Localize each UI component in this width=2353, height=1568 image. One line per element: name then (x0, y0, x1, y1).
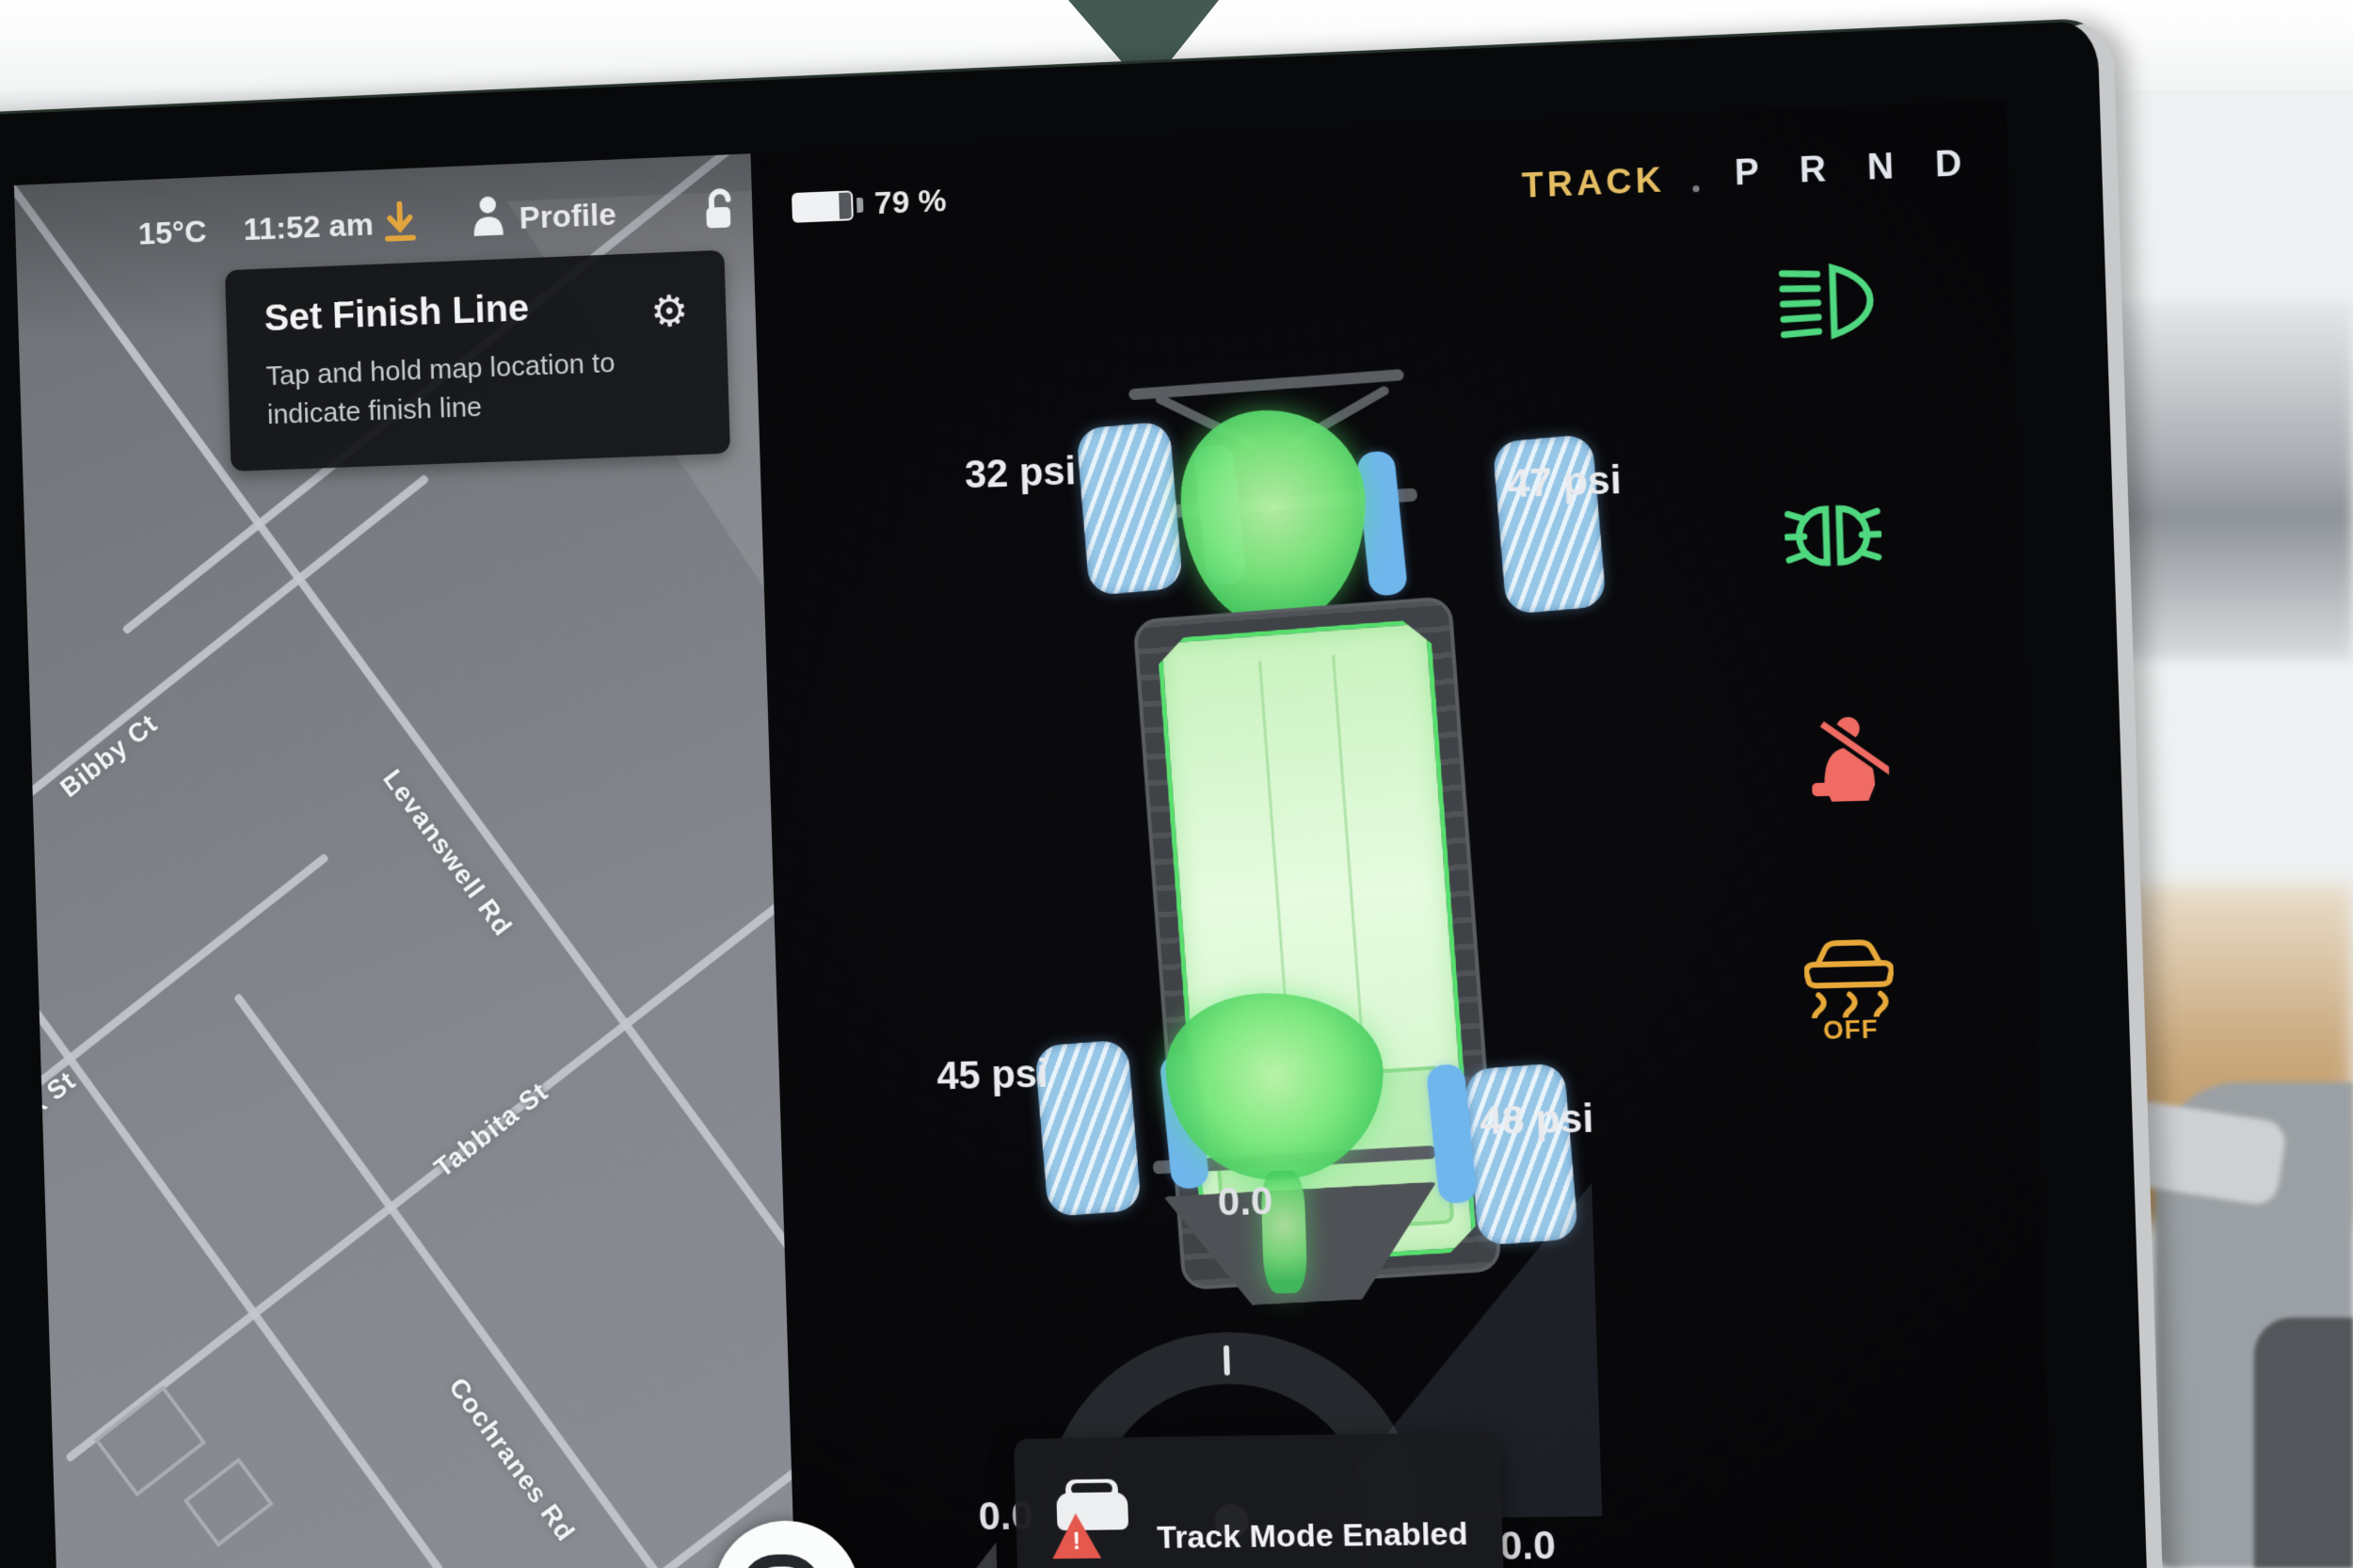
g-meter-tick (1224, 1345, 1230, 1375)
interior-object (2254, 1318, 2353, 1568)
warning-exclamation: ! (1051, 1527, 1101, 1557)
street-label-tabbita: Tabbita St (429, 1077, 554, 1184)
street-label-k-st: k St (24, 1066, 82, 1122)
road (14, 474, 430, 888)
finish-card-body: Tap and hold map location to indicate fi… (265, 344, 632, 435)
round-button-glyph (739, 1554, 824, 1568)
car-warning-icon: ! (1050, 1471, 1140, 1562)
outside-temperature[interactable]: 15°C (137, 214, 207, 252)
traction-off-label: OFF (1804, 1015, 1898, 1047)
clock: 11:52 am (243, 207, 374, 248)
building-outline (94, 1385, 207, 1497)
track-mode-panel: 79 % TRACK P R N D OFF (750, 100, 2058, 1568)
front-strut-bar (1128, 369, 1404, 400)
gear-settings-icon[interactable]: ⚙ (649, 289, 689, 333)
photo-of-tesla-screen: Bibby Ct Levanswell Rd k St Tabbita St C… (0, 0, 2353, 1568)
battery-icon-nub (856, 198, 863, 213)
battery-percent: 79 % (873, 183, 947, 222)
set-finish-line-card[interactable]: Set Finish Line Tap and hold map locatio… (225, 250, 730, 472)
download-update-icon[interactable] (380, 200, 420, 250)
rear-right-tire (1465, 1063, 1579, 1246)
battery-icon[interactable] (792, 190, 854, 222)
rear-left-tire (1034, 1039, 1142, 1217)
front-right-pressure: 47 psi (1507, 457, 1622, 507)
toast-message: Track Mode Enabled (1157, 1516, 1468, 1557)
front-left-pressure: 32 psi (964, 448, 1077, 497)
rear-right-pressure: 48 psi (1479, 1096, 1593, 1144)
g-meter-right-value: 0.0 (1499, 1523, 1557, 1568)
gear-indicator[interactable]: P R N D (1734, 143, 1977, 194)
profile-person-icon[interactable] (471, 194, 504, 243)
parking-lights-icon (1784, 496, 1882, 576)
seatbelt-warning-icon (1808, 714, 1890, 808)
front-left-tire (1076, 421, 1183, 596)
traction-control-off-icon: OFF (1803, 934, 1895, 1018)
finish-card-title: Set Finish Line (264, 286, 530, 340)
g-meter-top-value: 0.0 (1193, 1177, 1298, 1224)
high-beam-icon (1776, 259, 1876, 344)
drive-mode-label[interactable]: TRACK (1521, 160, 1665, 206)
road (14, 853, 329, 1222)
map-panel[interactable]: Bibby Ct Levanswell Rd k St Tabbita St C… (14, 153, 801, 1568)
unlock-icon[interactable] (700, 186, 739, 237)
building-outline (184, 1458, 274, 1547)
rear-left-pressure: 45 psi (936, 1051, 1048, 1098)
tesla-touchscreen: Bibby Ct Levanswell Rd k St Tabbita St C… (0, 17, 2169, 1568)
front-motor (1178, 407, 1369, 630)
street-label-cochranes: Cochranes Rd (442, 1372, 581, 1547)
profile-label[interactable]: Profile (519, 197, 616, 237)
separator-dot (1692, 185, 1699, 192)
track-mode-toast: ! Track Mode Enabled (1014, 1432, 1506, 1568)
